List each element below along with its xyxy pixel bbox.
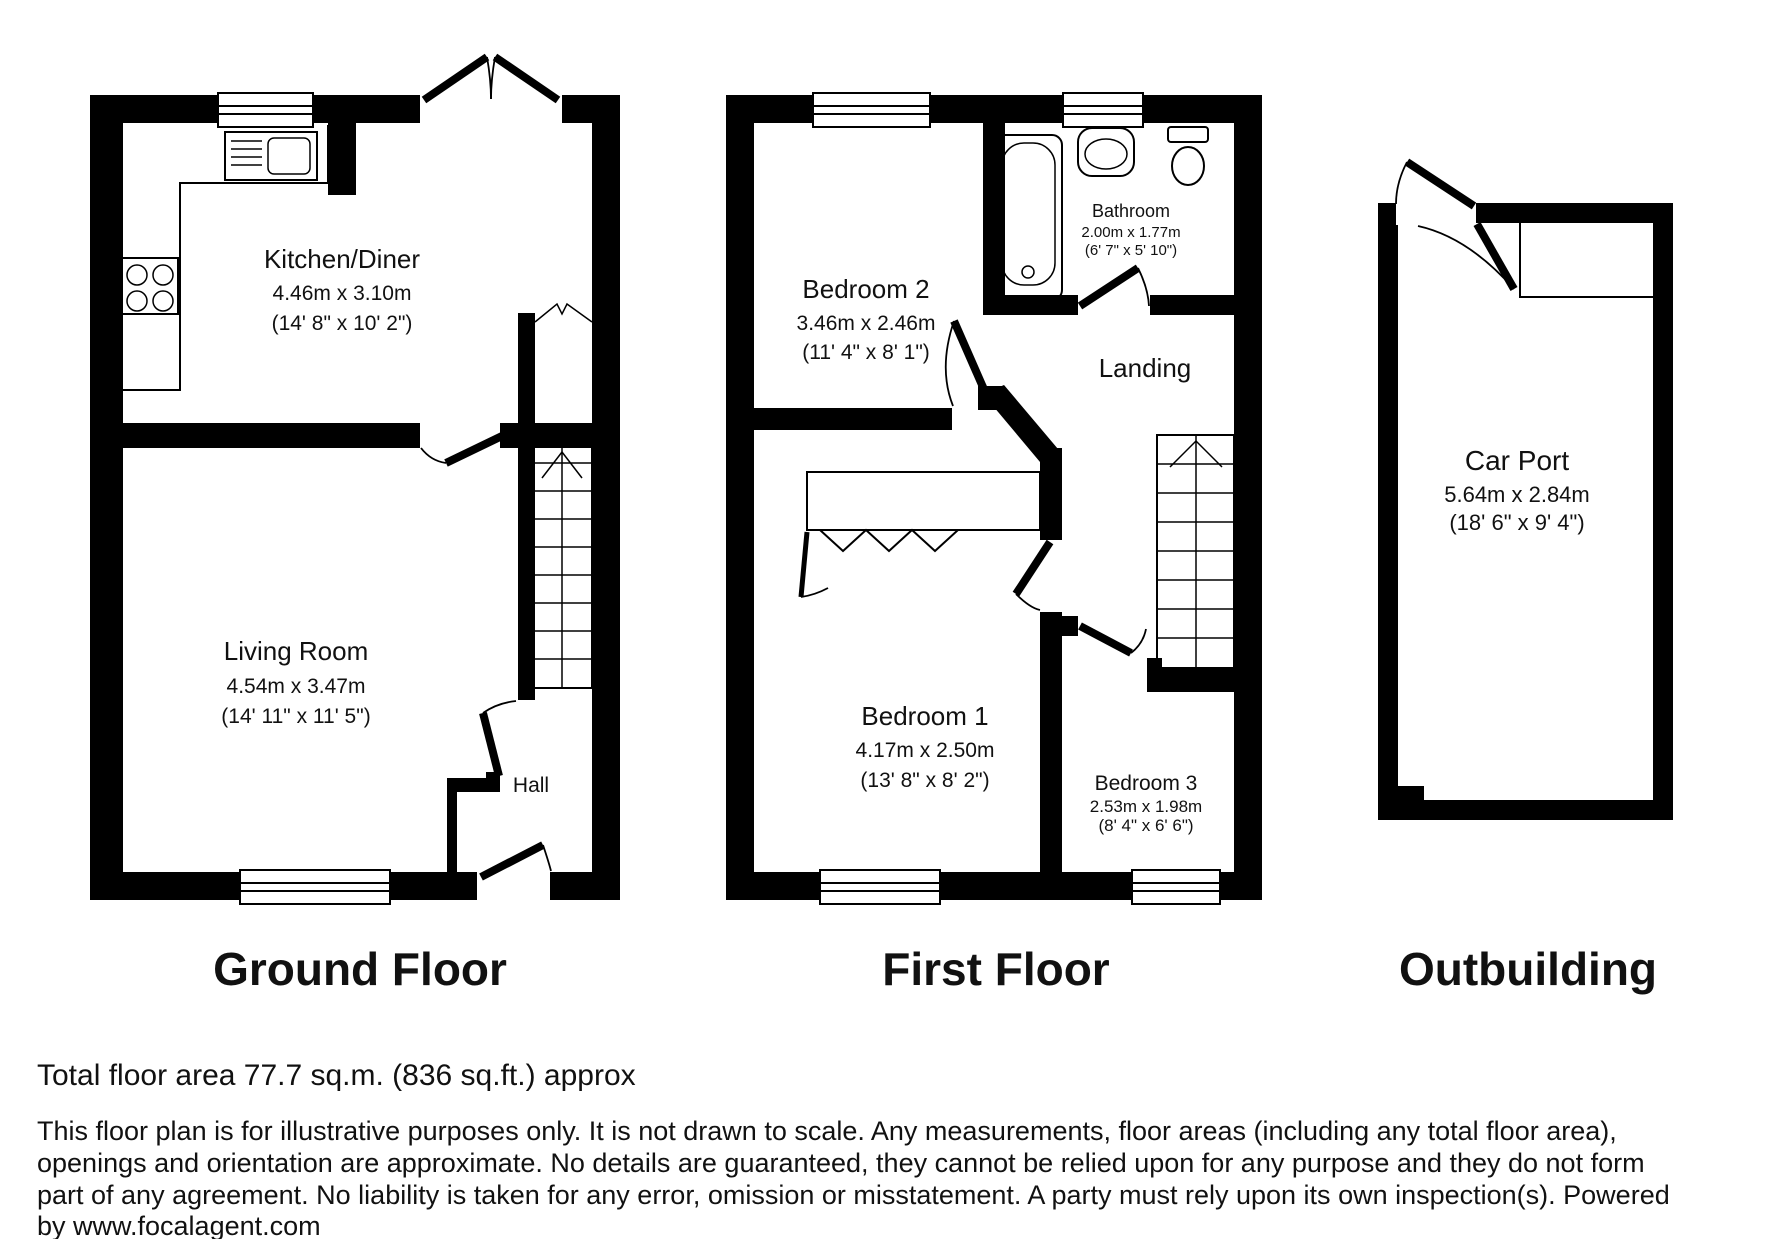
carport-inner-door <box>1418 224 1514 289</box>
room-dim-imperial: (11' 4" x 8' 1") <box>802 341 930 364</box>
room-label: Bedroom 1 <box>861 701 988 731</box>
ground-stairs <box>533 435 592 688</box>
kitchen-window <box>218 93 313 127</box>
washbasin <box>1078 128 1134 176</box>
room-bedroom2: Bedroom 2 3.46m x 2.46m (11' 4" x 8' 1") <box>797 274 936 364</box>
room-dim-imperial: (14' 8" x 10' 2") <box>272 312 413 335</box>
floorplan-page: Kitchen/Diner 4.46m x 3.10m (14' 8" x 10… <box>0 0 1771 1239</box>
room-label: Kitchen/Diner <box>264 244 420 274</box>
toilet <box>1168 127 1208 185</box>
room-label: Bedroom 2 <box>802 274 929 304</box>
room-dim-metric: 4.46m x 3.10m <box>273 282 412 305</box>
disclaimer-line-1: This floor plan is for illustrative purp… <box>37 1116 1617 1146</box>
bath-tub <box>995 135 1062 300</box>
serving-opening-symbol <box>535 304 592 322</box>
bedroom1-closet <box>801 472 1040 597</box>
first-stairs <box>1157 435 1234 668</box>
total-floor-area: Total floor area 77.7 sq.m. (836 sq.ft.)… <box>37 1059 636 1092</box>
room-dim-imperial: (13' 8" x 8' 2") <box>860 769 989 792</box>
room-bedroom1: Bedroom 1 4.17m x 2.50m (13' 8" x 8' 2") <box>856 701 995 792</box>
room-label: Living Room <box>224 636 369 666</box>
bedroom1-door <box>1016 542 1050 610</box>
room-bedroom3: Bedroom 3 2.53m x 1.98m (8' 4" x 6' 6") <box>1090 772 1202 835</box>
room-dim-metric: 3.46m x 2.46m <box>797 312 936 335</box>
room-dim-metric: 5.64m x 2.84m <box>1444 482 1590 507</box>
first-floor-title: First Floor <box>882 943 1110 995</box>
room-bathroom: Bathroom 2.00m x 1.77m (6' 7" x 5' 10") <box>1081 201 1180 259</box>
disclaimer-line-3: part of any agreement. No liability is t… <box>37 1180 1670 1210</box>
room-dim-imperial: (14' 11" x 11' 5") <box>221 705 370 728</box>
room-label: Bedroom 3 <box>1095 772 1198 795</box>
ground-floor-plan: Kitchen/Diner 4.46m x 3.10m (14' 8" x 10… <box>90 57 620 904</box>
room-dim-imperial: (18' 6" x 9' 4") <box>1449 510 1584 535</box>
room-dim-metric: 2.53m x 1.98m <box>1090 797 1202 816</box>
outbuilding-plan: Car Port 5.64m x 2.84m (18' 6" x 9' 4") <box>1378 162 1673 820</box>
room-living-room: Living Room 4.54m x 3.47m (14' 11" x 11'… <box>221 636 370 728</box>
bedroom2-window <box>813 93 930 127</box>
room-dim-metric: 4.54m x 3.47m <box>227 675 366 698</box>
carport-outer-door <box>1396 162 1474 206</box>
room-hall-label: Hall <box>513 774 549 797</box>
carport-store-partition <box>1520 223 1653 297</box>
room-dim-imperial: (6' 7" x 5' 10") <box>1085 242 1177 259</box>
room-dim-metric: 4.17m x 2.50m <box>856 739 995 762</box>
hall-door <box>483 701 516 776</box>
kitchen-hob <box>122 258 178 314</box>
bathroom-door <box>1080 268 1149 306</box>
first-floor-plan: Bedroom 2 3.46m x 2.46m (11' 4" x 8' 1")… <box>726 93 1262 904</box>
carport-door-opening <box>1396 201 1476 225</box>
kitchen-sink <box>225 132 317 180</box>
bedroom3-door <box>1080 626 1146 653</box>
outbuilding-title: Outbuilding <box>1399 943 1657 995</box>
floorplan-drawing: Kitchen/Diner 4.46m x 3.10m (14' 8" x 10… <box>0 0 1771 1239</box>
bedroom3-window <box>1132 870 1220 904</box>
bedroom1-window <box>820 870 940 904</box>
disclaimer-line-2: openings and orientation are approximate… <box>37 1148 1645 1178</box>
kitchen-door <box>421 436 502 463</box>
bathroom-window <box>1063 93 1143 127</box>
footer: Total floor area 77.7 sq.m. (836 sq.ft.)… <box>37 1059 1670 1239</box>
living-room-window <box>240 870 390 904</box>
room-dim-metric: 2.00m x 1.77m <box>1081 224 1180 241</box>
room-label: Bathroom <box>1092 201 1170 221</box>
room-dim-imperial: (8' 4" x 6' 6") <box>1098 816 1193 835</box>
disclaimer-line-4: by www.focalagent.com <box>37 1211 321 1239</box>
room-landing-label: Landing <box>1099 353 1192 383</box>
room-car-port: Car Port 5.64m x 2.84m (18' 6" x 9' 4") <box>1444 445 1590 535</box>
room-label: Car Port <box>1465 445 1569 476</box>
room-kitchen-diner: Kitchen/Diner 4.46m x 3.10m (14' 8" x 10… <box>264 244 420 335</box>
ground-floor-title: Ground Floor <box>213 943 507 995</box>
